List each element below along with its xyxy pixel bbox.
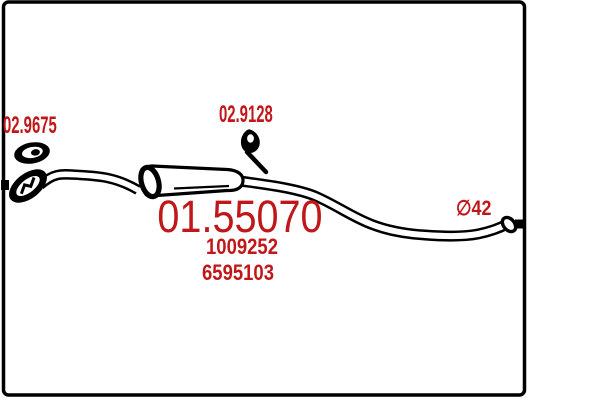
oval-gasket-icon: [12, 140, 51, 167]
rubber-hanger-icon: [241, 129, 266, 172]
hanger-part-number: 02.9128: [219, 103, 273, 127]
hanger-hook-line: [247, 152, 266, 172]
main-part-number: 01.55070: [152, 194, 328, 239]
oe-reference-1: 1009252: [158, 236, 326, 258]
pipe-diameter-label: ∅42: [456, 198, 491, 219]
oe-reference-2: 6595103: [154, 262, 322, 284]
gasket-part-number: 02.9675: [3, 114, 57, 138]
right-connector-square: [515, 220, 524, 229]
front-pipe: [40, 174, 138, 190]
left-connector-square: [1, 180, 9, 190]
catalog-diagram-page: 02.9675 02.9128 01.55070 1009252 6595103…: [0, 0, 600, 400]
